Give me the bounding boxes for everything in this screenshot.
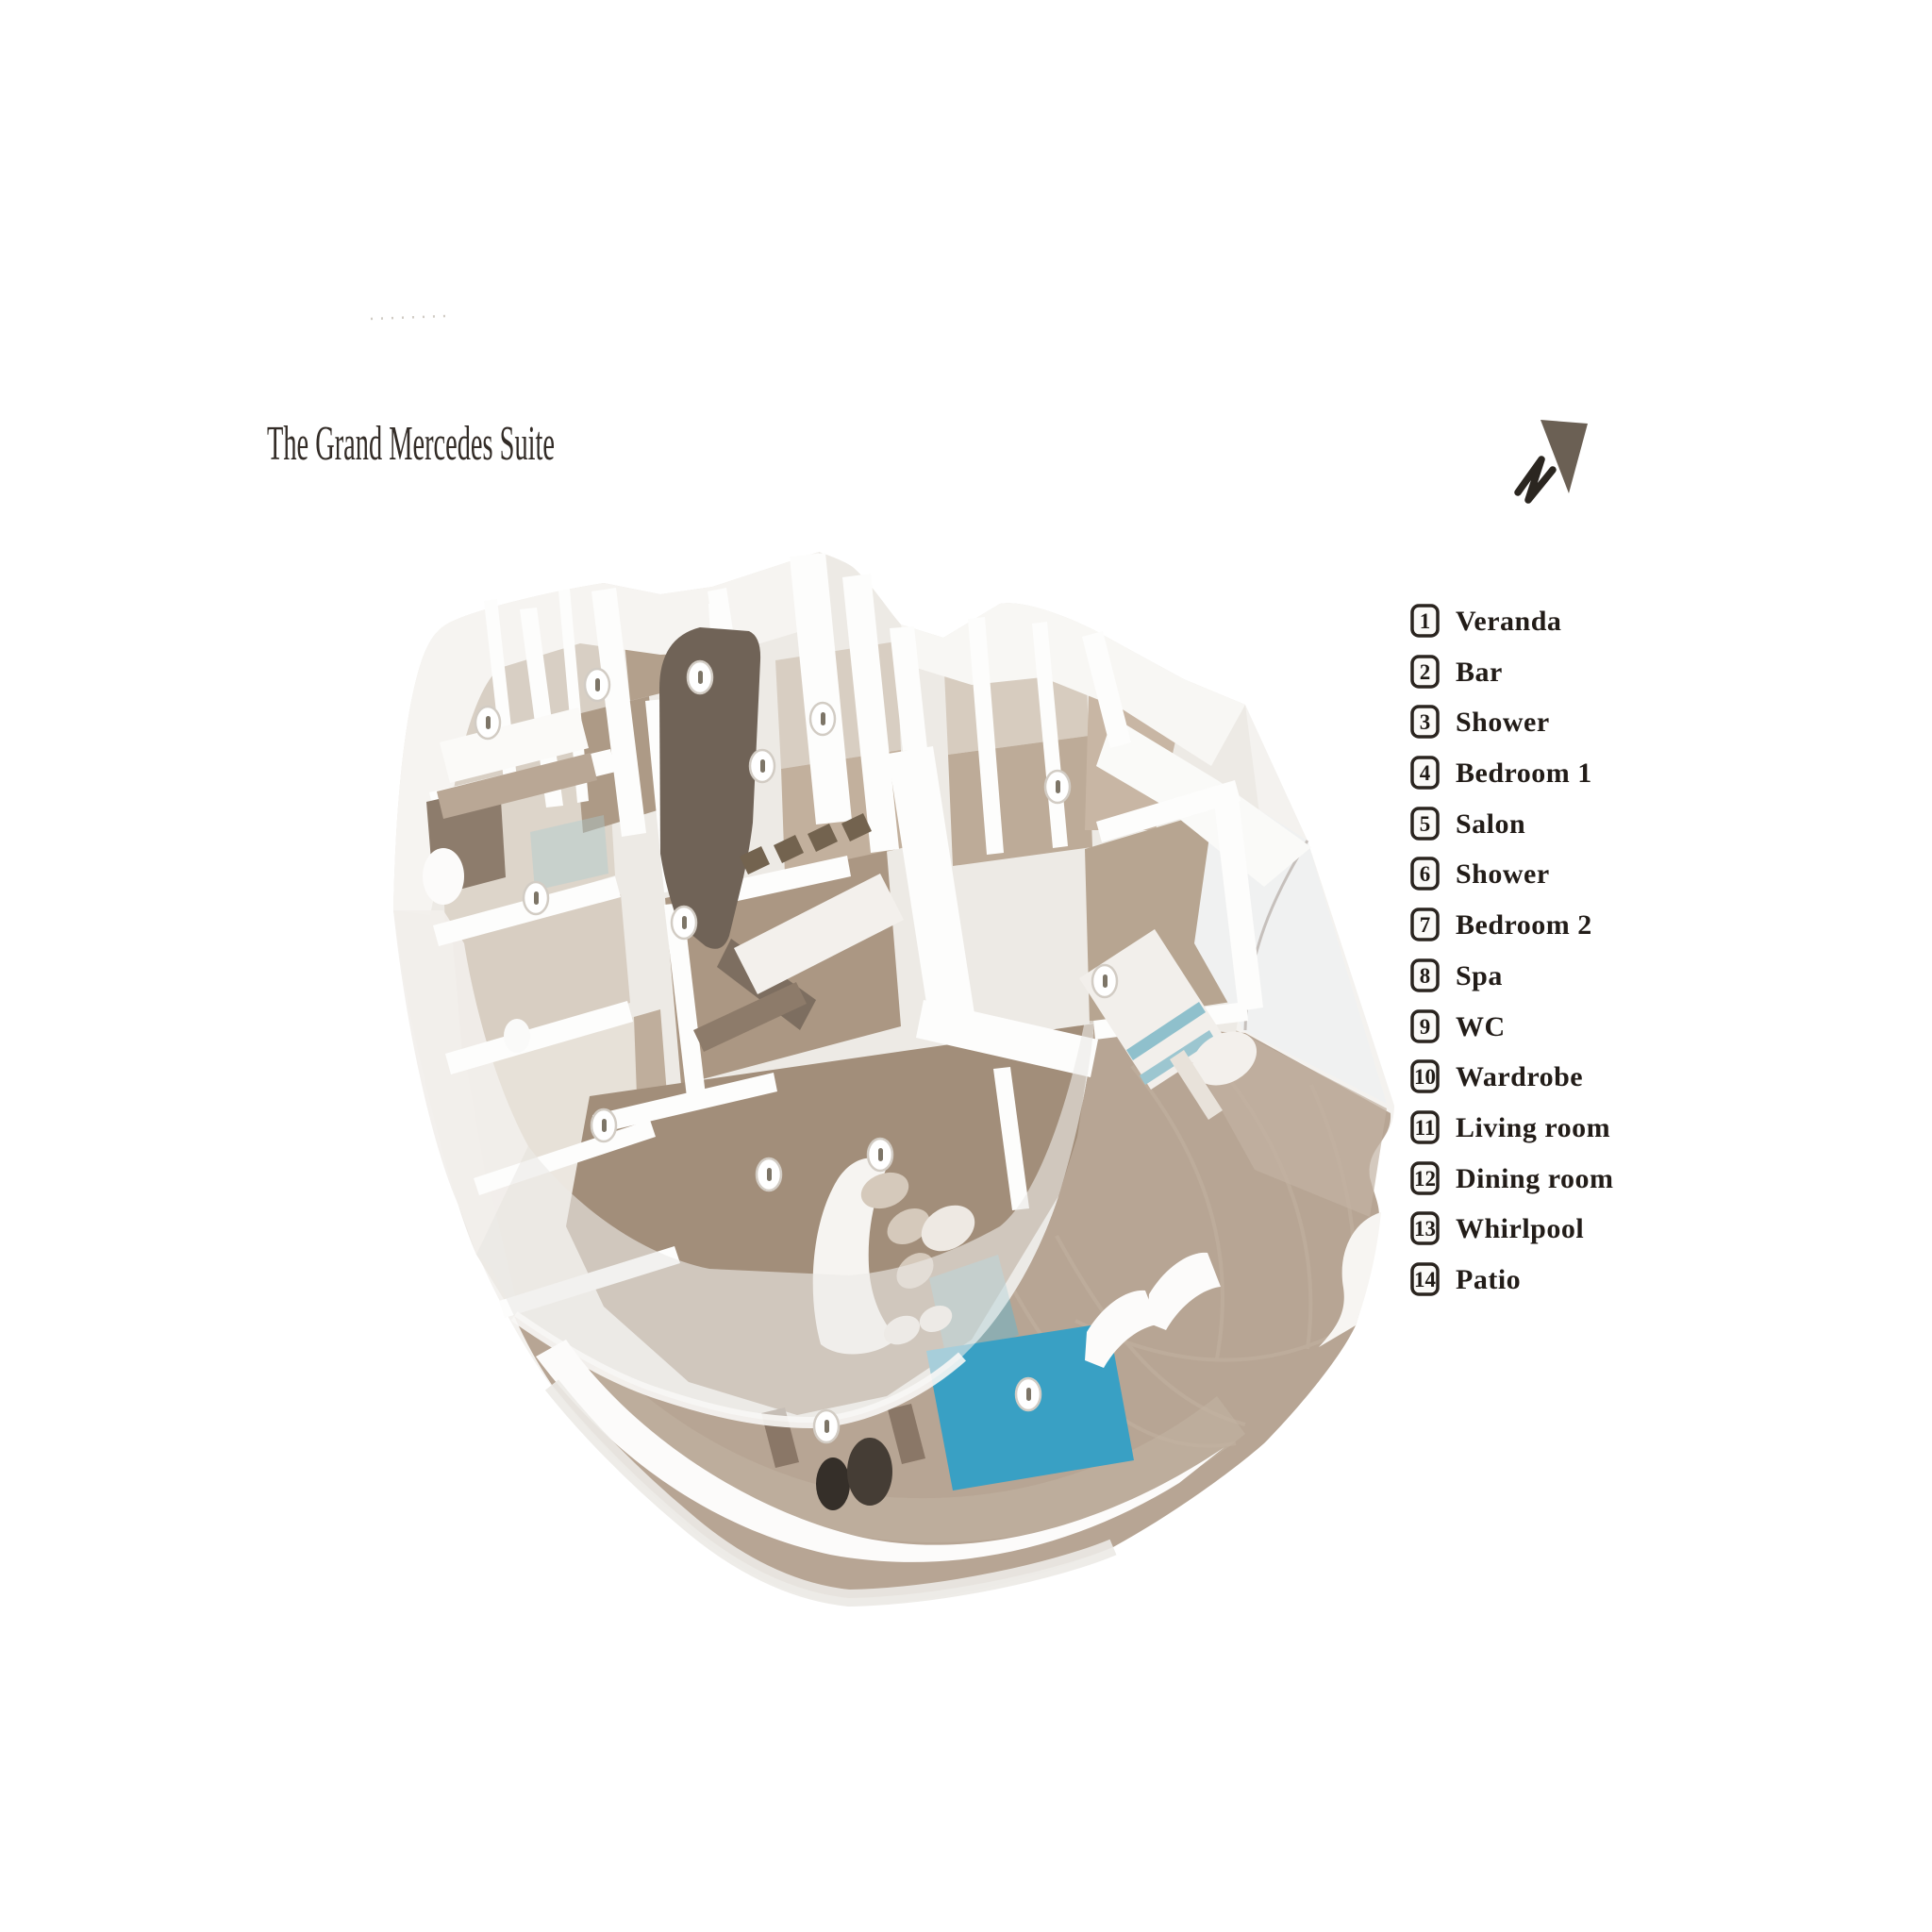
svg-text:14: 14: [1414, 1268, 1437, 1291]
svg-text:The Grand Mercedes Suite: The Grand Mercedes Suite: [267, 417, 555, 471]
svg-text:12: 12: [1414, 1167, 1436, 1191]
svg-text:13: 13: [1414, 1217, 1436, 1241]
svg-text:2: 2: [1420, 660, 1431, 684]
svg-text:6: 6: [1420, 862, 1431, 886]
svg-text:Bedroom 1: Bedroom 1: [1456, 758, 1592, 789]
svg-text:Wardrobe: Wardrobe: [1456, 1061, 1583, 1092]
svg-text:8: 8: [1420, 964, 1431, 988]
svg-text:Bedroom 2: Bedroom 2: [1456, 909, 1592, 941]
svg-text:Shower: Shower: [1456, 858, 1550, 890]
svg-text:4: 4: [1420, 761, 1431, 785]
svg-text:11: 11: [1415, 1116, 1436, 1140]
svg-text:1: 1: [1420, 609, 1431, 633]
svg-text:Whirlpool: Whirlpool: [1456, 1213, 1584, 1244]
svg-text:Bar: Bar: [1456, 657, 1503, 688]
svg-text:10: 10: [1414, 1065, 1436, 1089]
svg-text:Salon: Salon: [1456, 808, 1525, 840]
svg-text:Living room: Living room: [1456, 1112, 1610, 1143]
svg-text:9: 9: [1420, 1015, 1431, 1039]
svg-text:WC: WC: [1456, 1011, 1506, 1042]
svg-text:Dining room: Dining room: [1456, 1163, 1613, 1194]
svg-text:5: 5: [1420, 812, 1431, 836]
svg-text:7: 7: [1420, 913, 1431, 937]
svg-text:Veranda: Veranda: [1456, 606, 1561, 637]
svg-text:3: 3: [1420, 710, 1431, 734]
svg-text:Patio: Patio: [1456, 1264, 1521, 1295]
svg-text:Spa: Spa: [1456, 960, 1503, 991]
svg-text:Shower: Shower: [1456, 707, 1550, 738]
